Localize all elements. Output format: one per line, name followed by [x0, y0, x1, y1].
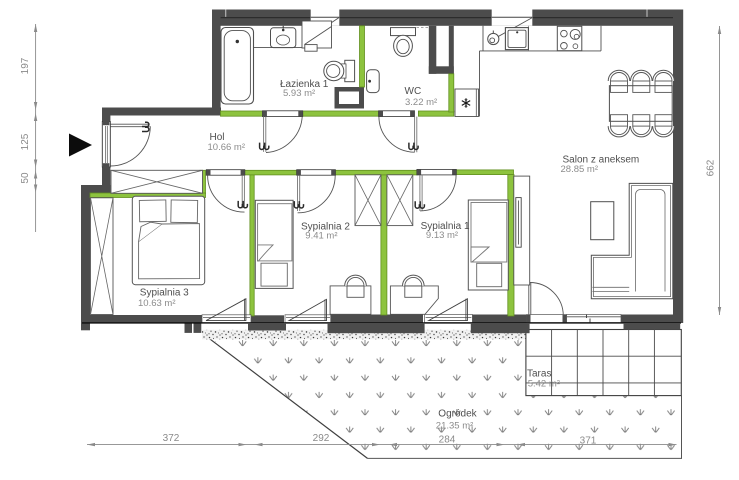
svg-text:371: 371: [580, 436, 597, 447]
svg-text:10.63 m²: 10.63 m²: [138, 298, 176, 309]
svg-text:21.35 m²: 21.35 m²: [436, 421, 474, 432]
svg-text:292: 292: [313, 433, 330, 444]
svg-text:28.85 m²: 28.85 m²: [561, 164, 599, 175]
svg-text:50: 50: [20, 172, 31, 184]
svg-text:9.13 m²: 9.13 m²: [426, 230, 458, 241]
svg-text:284: 284: [439, 435, 456, 446]
svg-text:372: 372: [163, 433, 180, 444]
svg-text:5.42 m²: 5.42 m²: [528, 379, 560, 390]
svg-text:Ogródek: Ogródek: [438, 409, 477, 420]
svg-text:5.93 m²: 5.93 m²: [283, 88, 315, 99]
svg-text:Sypialnia 3: Sypialnia 3: [140, 288, 189, 299]
svg-text:10.66 m²: 10.66 m²: [208, 142, 246, 153]
svg-text:WC: WC: [405, 86, 422, 97]
svg-text:125: 125: [20, 133, 31, 150]
svg-text:3.22 m²: 3.22 m²: [405, 97, 437, 108]
svg-text:197: 197: [20, 57, 31, 74]
svg-text:662: 662: [706, 159, 717, 176]
svg-text:9.41 m²: 9.41 m²: [305, 231, 337, 242]
